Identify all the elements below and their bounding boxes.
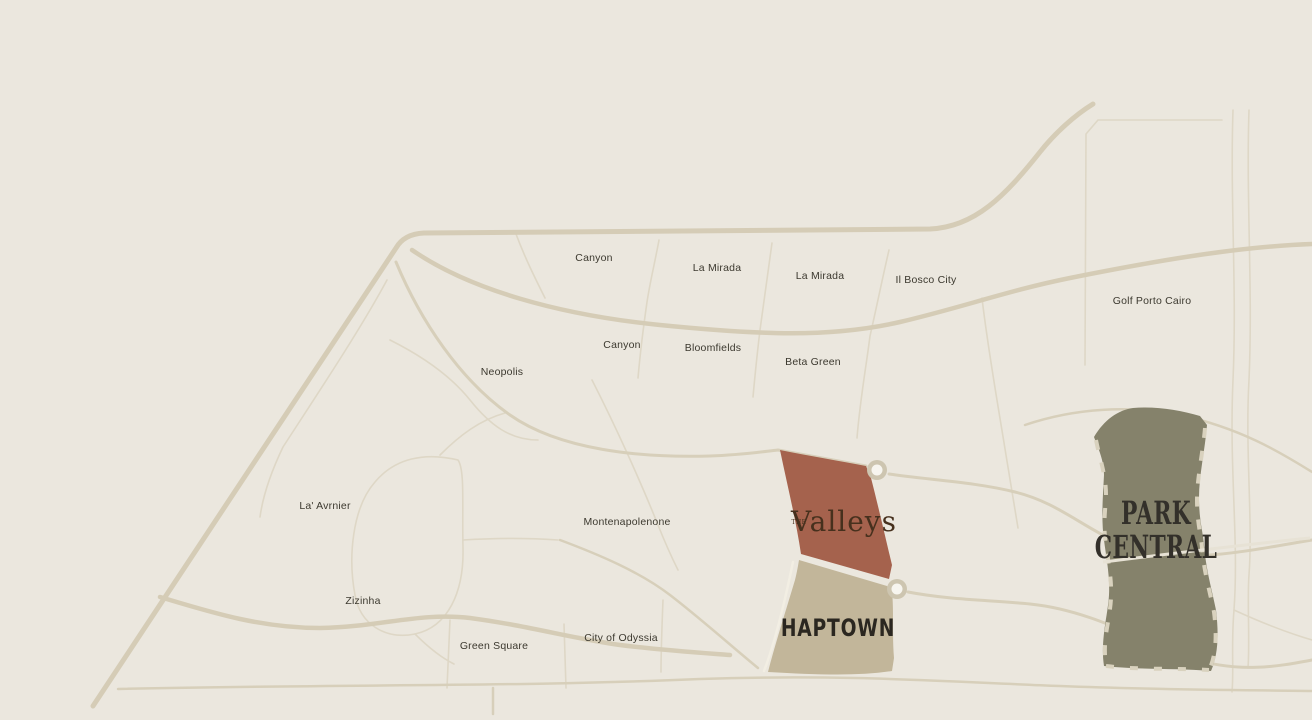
district-label-la-mirada-2: La Mirada: [796, 270, 845, 282]
haptown-logo[interactable]: HAPTOWN: [781, 615, 895, 643]
district-label-canyon-south: Canyon: [603, 339, 640, 351]
district-label-la-mirada-1: La Mirada: [693, 262, 742, 274]
district-label-la-avrnier: La' Avrnier: [299, 500, 351, 512]
district-label-zizinha: Zizinha: [345, 595, 380, 607]
masterplan-canvas: Canyon La Mirada La Mirada Il Bosco City…: [0, 0, 1312, 720]
district-label-bloomfields: Bloomfields: [685, 342, 741, 354]
district-label-golf-porto-cairo: Golf Porto Cairo: [1113, 295, 1191, 307]
district-label-neopolis: Neopolis: [481, 366, 523, 378]
district-label-city-of-odyssia: City of Odyssia: [584, 632, 658, 644]
district-label-montenapolenone: Montenapolenone: [583, 516, 670, 528]
park-central-logo-line1[interactable]: PARK: [1121, 495, 1192, 532]
masterplan-map: Canyon La Mirada La Mirada Il Bosco City…: [0, 0, 1312, 720]
valleys-logo[interactable]: Valleys: [790, 505, 897, 538]
junction-node-icon: [872, 465, 883, 476]
park-central-logo-line2[interactable]: CENTRAL: [1095, 529, 1218, 566]
district-label-il-bosco-city: Il Bosco City: [896, 274, 957, 286]
district-label-beta-green: Beta Green: [785, 356, 841, 368]
district-label-green-square: Green Square: [460, 640, 528, 652]
district-label-canyon-north: Canyon: [575, 252, 612, 264]
junction-node-icon: [892, 584, 903, 595]
